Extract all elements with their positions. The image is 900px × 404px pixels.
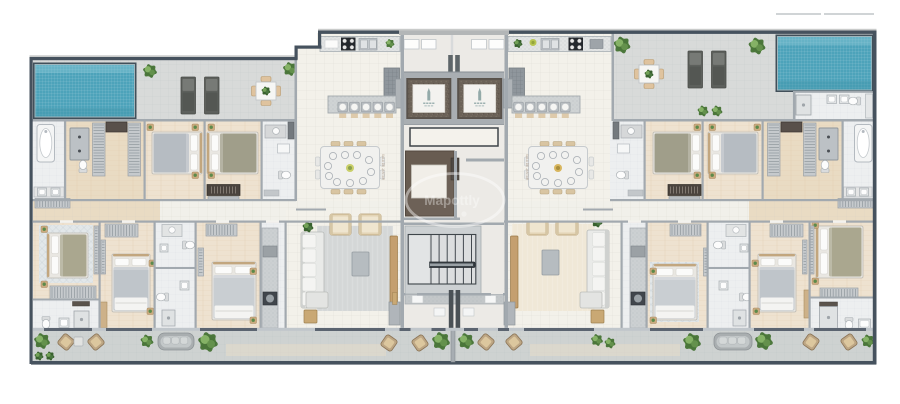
svg-text:SALA DE JANTAR: SALA DE JANTAR [525, 154, 529, 181]
svg-text:SALA DE JANTAR: SALA DE JANTAR [381, 154, 385, 181]
svg-text:Mapottly: Mapottly [424, 193, 480, 208]
